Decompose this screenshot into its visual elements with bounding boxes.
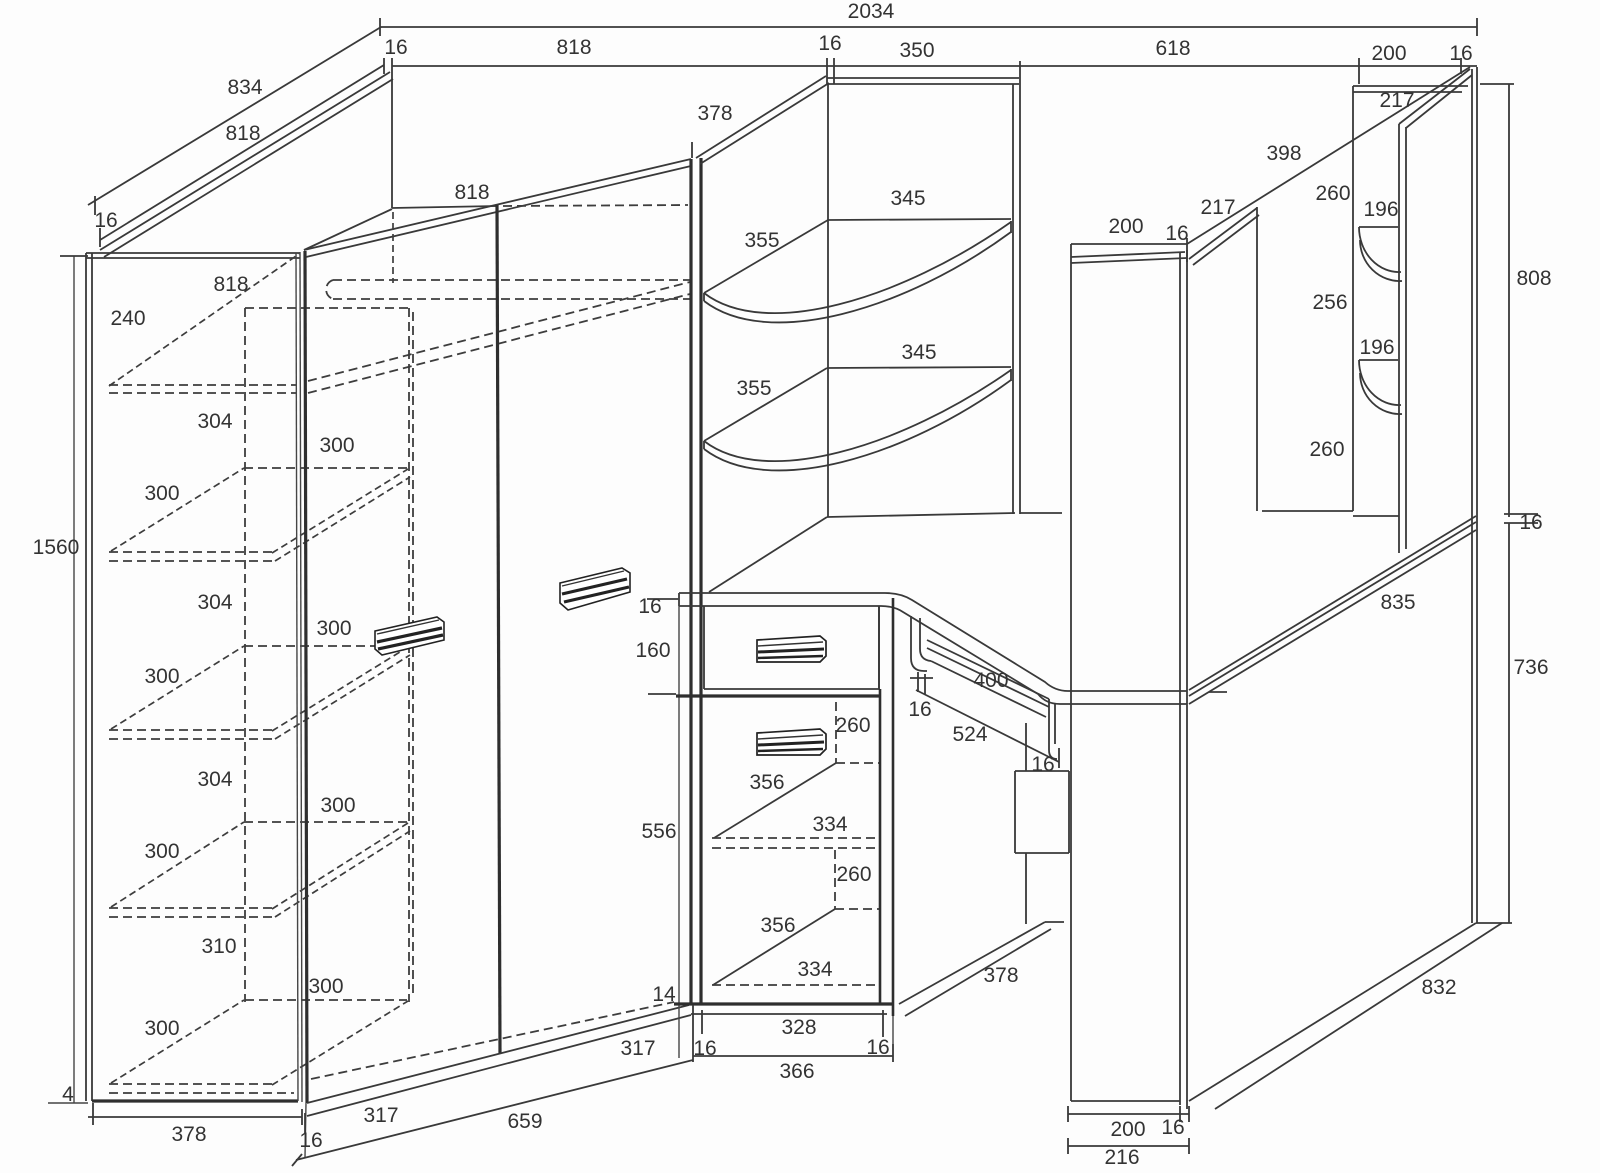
svg-text:832: 832	[1421, 976, 1456, 999]
svg-text:260: 260	[836, 863, 871, 886]
svg-text:200: 200	[1371, 42, 1406, 65]
svg-text:304: 304	[197, 591, 232, 614]
svg-text:378: 378	[171, 1123, 206, 1146]
svg-text:736: 736	[1513, 656, 1548, 679]
svg-text:16: 16	[693, 1037, 716, 1060]
svg-text:808: 808	[1516, 267, 1551, 290]
svg-text:304: 304	[197, 410, 232, 433]
svg-text:300: 300	[319, 434, 354, 457]
svg-text:196: 196	[1359, 336, 1394, 359]
svg-text:16: 16	[1161, 1116, 1184, 1139]
svg-text:355: 355	[736, 377, 771, 400]
svg-text:16: 16	[94, 209, 117, 232]
svg-text:2034: 2034	[848, 0, 895, 23]
svg-text:524: 524	[952, 723, 987, 746]
svg-text:196: 196	[1363, 198, 1398, 221]
svg-text:356: 356	[760, 914, 795, 937]
svg-text:366: 366	[779, 1060, 814, 1083]
svg-text:256: 256	[1312, 291, 1347, 314]
svg-text:16: 16	[818, 32, 841, 55]
svg-text:160: 160	[635, 639, 670, 662]
svg-text:16: 16	[1031, 753, 1054, 776]
svg-text:260: 260	[835, 714, 870, 737]
svg-text:4: 4	[62, 1083, 74, 1106]
svg-text:835: 835	[1380, 591, 1415, 614]
svg-text:334: 334	[797, 958, 832, 981]
svg-text:618: 618	[1155, 37, 1190, 60]
svg-text:300: 300	[144, 482, 179, 505]
svg-text:200: 200	[1110, 1118, 1145, 1141]
svg-text:398: 398	[1266, 142, 1301, 165]
svg-text:659: 659	[507, 1110, 542, 1133]
svg-text:304: 304	[197, 768, 232, 791]
svg-text:16: 16	[638, 595, 661, 618]
svg-text:345: 345	[901, 341, 936, 364]
svg-text:16: 16	[299, 1129, 322, 1152]
svg-text:834: 834	[227, 76, 262, 99]
svg-text:350: 350	[899, 39, 934, 62]
svg-text:400: 400	[973, 669, 1008, 692]
svg-text:14: 14	[652, 983, 676, 1006]
svg-text:818: 818	[454, 181, 489, 204]
svg-text:300: 300	[144, 665, 179, 688]
svg-text:16: 16	[908, 698, 931, 721]
svg-text:310: 310	[201, 935, 236, 958]
svg-text:16: 16	[384, 36, 407, 59]
svg-text:355: 355	[744, 229, 779, 252]
svg-text:378: 378	[697, 102, 732, 125]
svg-text:818: 818	[225, 122, 260, 145]
svg-text:217: 217	[1379, 89, 1414, 112]
svg-text:16: 16	[1449, 42, 1472, 65]
svg-text:317: 317	[363, 1104, 398, 1127]
svg-text:317: 317	[620, 1037, 655, 1060]
svg-text:556: 556	[641, 820, 676, 843]
svg-text:240: 240	[110, 307, 145, 330]
svg-text:1560: 1560	[33, 536, 80, 559]
svg-text:345: 345	[890, 187, 925, 210]
svg-text:217: 217	[1200, 196, 1235, 219]
svg-text:334: 334	[812, 813, 847, 836]
svg-text:300: 300	[308, 975, 343, 998]
svg-text:260: 260	[1315, 182, 1350, 205]
svg-text:16: 16	[866, 1036, 889, 1059]
svg-text:216: 216	[1104, 1146, 1139, 1169]
svg-text:328: 328	[781, 1016, 816, 1039]
svg-text:260: 260	[1309, 438, 1344, 461]
svg-text:300: 300	[144, 840, 179, 863]
svg-text:818: 818	[213, 273, 248, 296]
svg-text:300: 300	[320, 794, 355, 817]
svg-text:378: 378	[983, 964, 1018, 987]
svg-text:200: 200	[1108, 215, 1143, 238]
svg-text:16: 16	[1519, 511, 1542, 534]
svg-text:356: 356	[749, 771, 784, 794]
svg-text:300: 300	[316, 617, 351, 640]
svg-text:300: 300	[144, 1017, 179, 1040]
svg-text:16: 16	[1165, 222, 1188, 245]
svg-text:818: 818	[556, 36, 591, 59]
